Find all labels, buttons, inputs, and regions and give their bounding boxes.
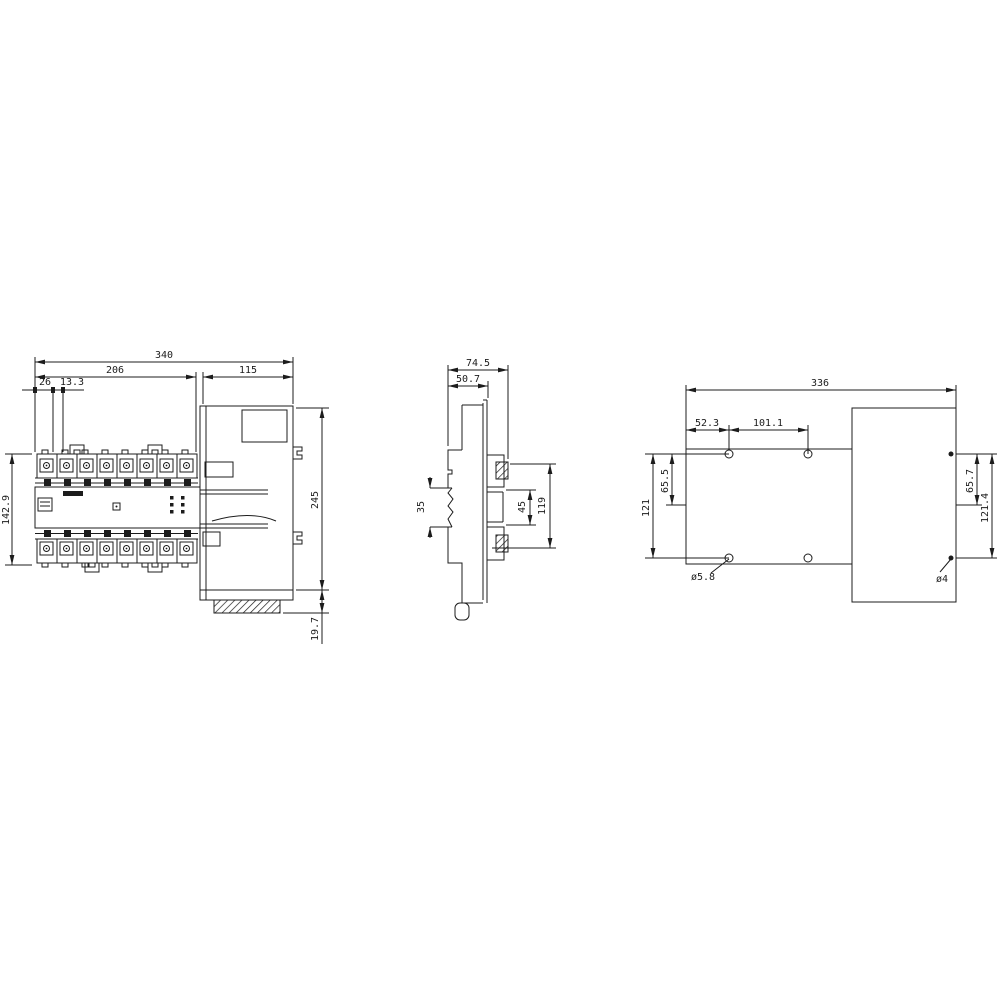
front-terminal-row-top — [35, 445, 198, 487]
dim-label-206: 206 — [106, 365, 124, 376]
dim-drill-actuator-span-y: 121.4 — [980, 454, 992, 558]
side-dimensions: 74.5 50.7 35 45 — [416, 358, 556, 548]
side-connector-bottom-hatched — [496, 535, 508, 552]
dim-drill-hole-pitch-x: 101.1 — [729, 418, 808, 430]
front-terminal-row-bottom — [35, 528, 198, 572]
dim-drill-hole-span-y: 121 — [641, 454, 653, 558]
handle-recess-arc — [212, 516, 276, 522]
dim-side-depth-body: 50.7 — [448, 374, 488, 386]
callout-actuator-hole-diameter: ø4 — [936, 559, 951, 585]
dim-front-pole-offsets: 26 13.3 — [22, 377, 84, 393]
dim-drill-actuator-mid-offset-y: 65.7 — [965, 454, 977, 505]
drilling-plan: 336 52.3 101.1 121 65.5 65.7 — [641, 378, 997, 602]
label-strip — [63, 491, 83, 496]
side-profile — [448, 400, 508, 620]
dim-label-dia-4: ø4 — [936, 574, 948, 585]
status-dots — [170, 496, 185, 514]
terminal-strip-hatched — [214, 600, 280, 613]
drawing-canvas: 340 206 115 26 13.3 142 — [0, 0, 1000, 1000]
dim-front-base-width: 206 — [35, 365, 196, 377]
side-connector-top-hatched — [496, 462, 508, 479]
indicator-window — [113, 503, 120, 510]
dim-label-119: 119 — [537, 497, 548, 515]
side-recess — [487, 492, 503, 522]
dim-side-din-notch: 35 — [416, 477, 452, 538]
din-clip-bottom-2 — [148, 563, 162, 572]
dim-drill-hole-mid-offset-y: 65.5 — [660, 454, 672, 505]
dim-label-340: 340 — [155, 350, 173, 361]
dim-drill-total-width: 336 — [686, 378, 956, 390]
dim-label-245: 245 — [310, 491, 321, 509]
dim-label-35: 35 — [416, 501, 427, 513]
dim-label-dia-5-8: ø5.8 — [691, 572, 715, 583]
mounting-hole — [804, 554, 812, 562]
dim-label-101-1: 101.1 — [753, 418, 783, 429]
dim-front-actuator-width: 115 — [203, 365, 293, 377]
drilling-dimensions: 336 52.3 101.1 121 65.5 65.7 — [641, 378, 992, 585]
dim-label-45: 45 — [517, 501, 528, 513]
dim-label-336: 336 — [811, 378, 829, 389]
actuator-hole — [949, 452, 954, 457]
dim-label-65-7: 65.7 — [965, 469, 976, 493]
dim-label-115: 115 — [239, 365, 257, 376]
dim-front-bottom-offset: 19.7 — [283, 590, 329, 644]
mount-ear-bottom — [293, 532, 302, 544]
dim-label-65-5: 65.5 — [660, 469, 671, 493]
dim-front-total-width: 340 — [35, 350, 293, 362]
dim-label-52-3: 52.3 — [695, 418, 719, 429]
dim-label-26: 26 — [39, 377, 51, 388]
dim-label-121-4: 121.4 — [980, 493, 991, 523]
din-rail-hook — [448, 488, 453, 527]
front-body — [35, 487, 200, 528]
technical-dimension-drawing: 340 206 115 26 13.3 142 — [0, 0, 1000, 1000]
dim-label-13-3: 13.3 — [60, 377, 84, 388]
dim-front-actuator-height: 245 — [296, 408, 329, 590]
dim-front-base-height: 142.9 — [1, 454, 32, 565]
mount-ear-top — [293, 447, 302, 459]
dim-label-121: 121 — [641, 499, 652, 517]
dim-side-depth-total: 74.5 — [448, 358, 508, 370]
dim-label-74-5: 74.5 — [466, 358, 490, 369]
side-foot — [455, 603, 469, 620]
rating-plate-icon — [38, 498, 52, 511]
front-view: 340 206 115 26 13.3 142 — [1, 350, 329, 644]
front-actuator-block — [200, 406, 302, 613]
din-clip-top-2 — [148, 445, 162, 454]
side-view: 74.5 50.7 35 45 — [416, 358, 556, 620]
dim-drill-hole-offset-x: 52.3 — [686, 418, 729, 430]
dim-label-142-9: 142.9 — [1, 495, 12, 525]
dim-label-19-7: 19.7 — [310, 617, 321, 641]
callout-base-hole-diameter: ø5.8 — [691, 559, 729, 583]
dim-label-50-7: 50.7 — [456, 374, 480, 385]
dim-side-terminal-span: 45 — [506, 490, 536, 525]
